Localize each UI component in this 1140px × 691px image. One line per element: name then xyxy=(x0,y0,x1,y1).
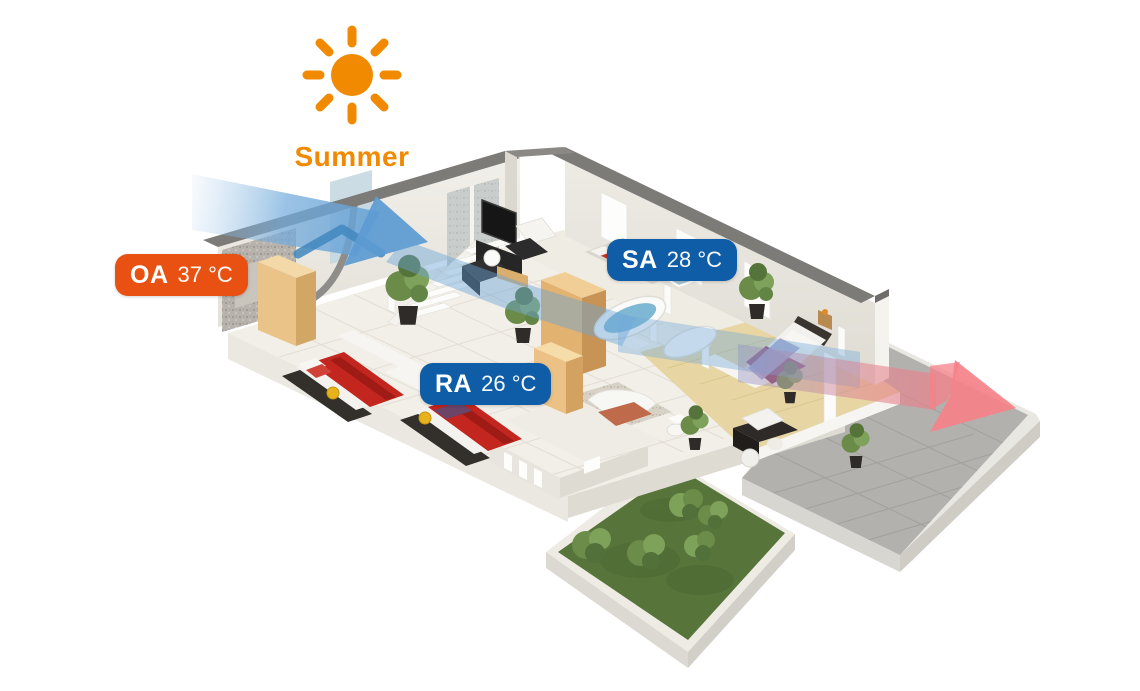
sun-icon xyxy=(300,22,404,128)
sa-code: SA xyxy=(622,246,658,275)
summer-airflow-diagram: Summer OA 37 °C SA 28 °C RA 26 °C xyxy=(0,0,1140,691)
outdoor-air-badge: OA 37 °C xyxy=(115,254,248,296)
oa-temperature: 37 °C xyxy=(178,262,233,288)
return-air-badge: RA 26 °C xyxy=(420,363,551,405)
oa-code: OA xyxy=(130,261,169,290)
season-label: Summer xyxy=(262,141,442,173)
supply-air-badge: SA 28 °C xyxy=(607,239,737,281)
house-illustration xyxy=(0,0,1140,691)
sa-temperature: 28 °C xyxy=(667,247,722,273)
ra-temperature: 26 °C xyxy=(481,371,536,397)
ra-code: RA xyxy=(435,370,472,399)
